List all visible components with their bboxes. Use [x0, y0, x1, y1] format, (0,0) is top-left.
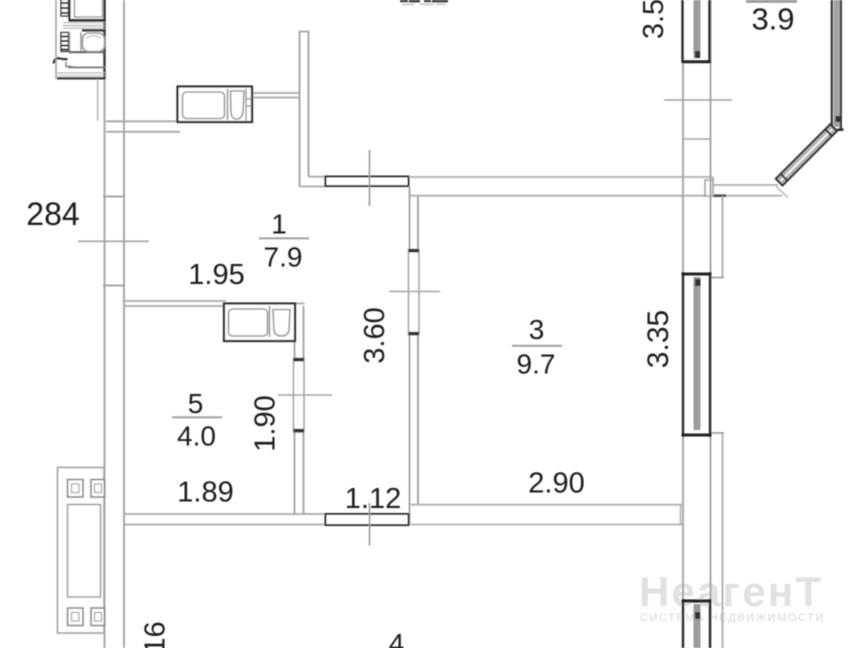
svg-text:284: 284 [26, 196, 79, 232]
svg-text:1: 1 [271, 209, 287, 240]
svg-text:4.0: 4.0 [177, 421, 216, 452]
svg-text:3.5: 3.5 [638, 0, 670, 39]
svg-text:1.95: 1.95 [188, 259, 244, 291]
svg-text:НеагенТ: НеагенТ [639, 568, 823, 615]
svg-text:16: 16 [140, 621, 172, 648]
svg-text:7.9: 7.9 [264, 242, 303, 273]
svg-text:3.60: 3.60 [359, 307, 391, 363]
svg-text:СИСТЕМА НЕДВИЖИМОСТИ: СИСТЕМА НЕДВИЖИМОСТИ [640, 612, 825, 624]
svg-text:1.89: 1.89 [177, 477, 233, 509]
svg-text:1.90: 1.90 [250, 395, 282, 451]
svg-text:3.9: 3.9 [751, 2, 794, 37]
svg-text:9.7: 9.7 [517, 349, 556, 380]
svg-text:4: 4 [389, 628, 405, 648]
svg-text:3: 3 [529, 314, 545, 345]
svg-text:1.12: 1.12 [345, 483, 401, 515]
svg-text:5: 5 [188, 388, 204, 419]
svg-text:3.35: 3.35 [642, 310, 675, 368]
svg-text:2.90: 2.90 [528, 468, 584, 500]
